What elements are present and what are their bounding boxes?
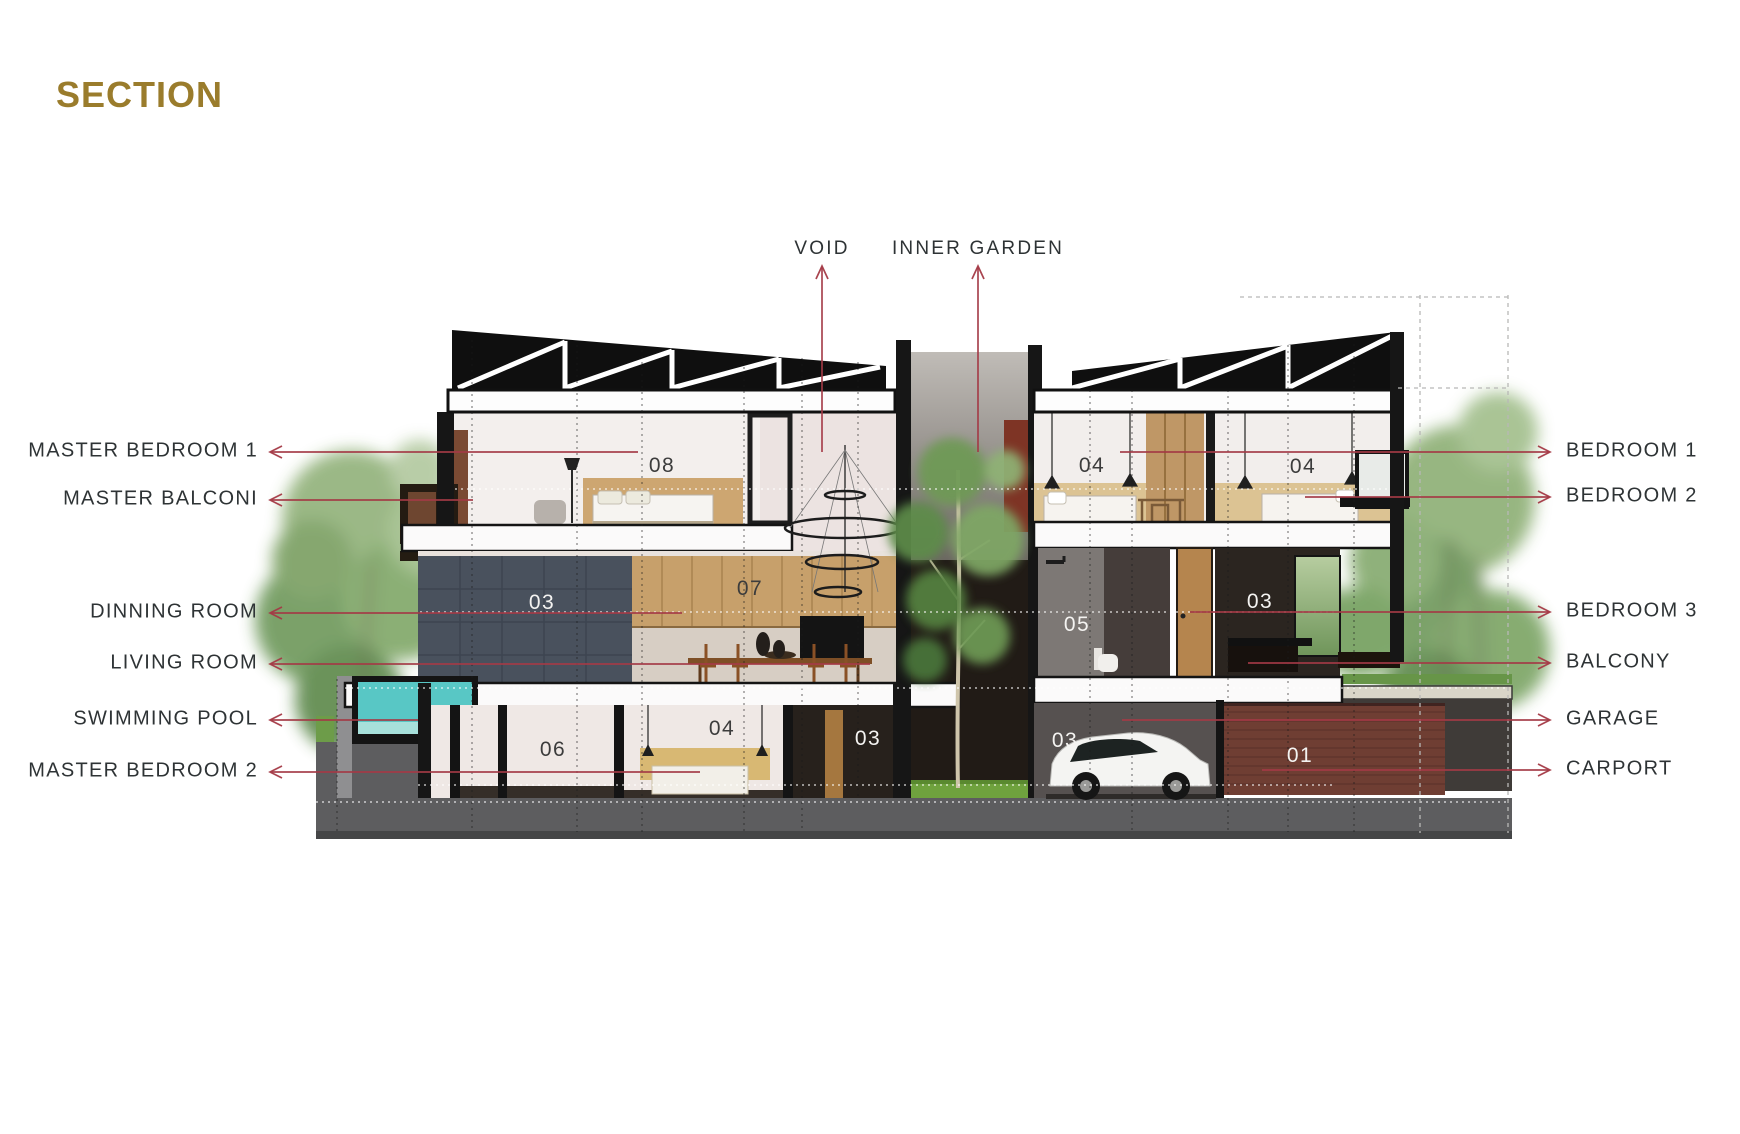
- section-drawing: [0, 0, 1740, 1134]
- tv-screen: [800, 616, 864, 660]
- annotation-label-bedroom-3: BEDROOM 3: [1566, 600, 1698, 623]
- room-number-bathroom: 05: [1064, 613, 1090, 637]
- basement-left: [418, 705, 905, 798]
- armchair: [534, 500, 566, 524]
- annotation-label-inner-garden: INNER GARDEN: [892, 238, 1064, 260]
- annotation-label-master-bedroom-1: MASTER BEDROOM 1: [28, 440, 258, 463]
- room-number-kitchen-cabinets: 07: [737, 577, 763, 601]
- annotation-label-living-room: LIVING ROOM: [110, 652, 258, 675]
- room-number-carport-wall: 01: [1287, 744, 1313, 768]
- room-number-bedroom-1: 04: [1079, 454, 1105, 478]
- annotation-label-balcony: BALCONY: [1566, 651, 1671, 674]
- annotation-label-bedroom-1: BEDROOM 1: [1566, 440, 1698, 463]
- annotation-label-swimming-pool: SWIMMING POOL: [73, 708, 258, 731]
- slate-feature-wall: [418, 556, 632, 690]
- room-number-garage: 03: [1052, 729, 1078, 753]
- brick-wall: [1223, 703, 1445, 795]
- room-number-master-bedroom-2: 04: [709, 717, 735, 741]
- annotation-label-garage: GARAGE: [1566, 708, 1659, 731]
- bed-master-1: [583, 478, 743, 525]
- annotation-label-void: VOID: [794, 238, 849, 260]
- annotation-label-dinning-room: DINNING ROOM: [90, 601, 258, 624]
- room-number-dining-feature-wall: 03: [529, 591, 555, 615]
- annotation-label-bedroom-2: BEDROOM 2: [1566, 485, 1698, 508]
- roof-truss-right: [1034, 332, 1398, 412]
- annotation-label-master-balconi: MASTER BALCONI: [63, 488, 258, 511]
- room-number-basement-room: 06: [540, 738, 566, 762]
- section-sheet: SECTION: [0, 0, 1740, 1134]
- room-number-master-bedroom-1: 08: [649, 454, 675, 478]
- annotation-label-master-bedroom-2: MASTER BEDROOM 2: [28, 760, 258, 783]
- void-column-left: [896, 340, 911, 798]
- room-number-bedroom-3: 03: [1247, 590, 1273, 614]
- room-number-bedroom-2: 04: [1290, 455, 1316, 479]
- roof-truss-left: [448, 330, 895, 412]
- right-edge-column: [1390, 332, 1404, 662]
- room-number-lower-hall: 03: [855, 727, 881, 751]
- annotation-label-carport: CARPORT: [1566, 758, 1673, 781]
